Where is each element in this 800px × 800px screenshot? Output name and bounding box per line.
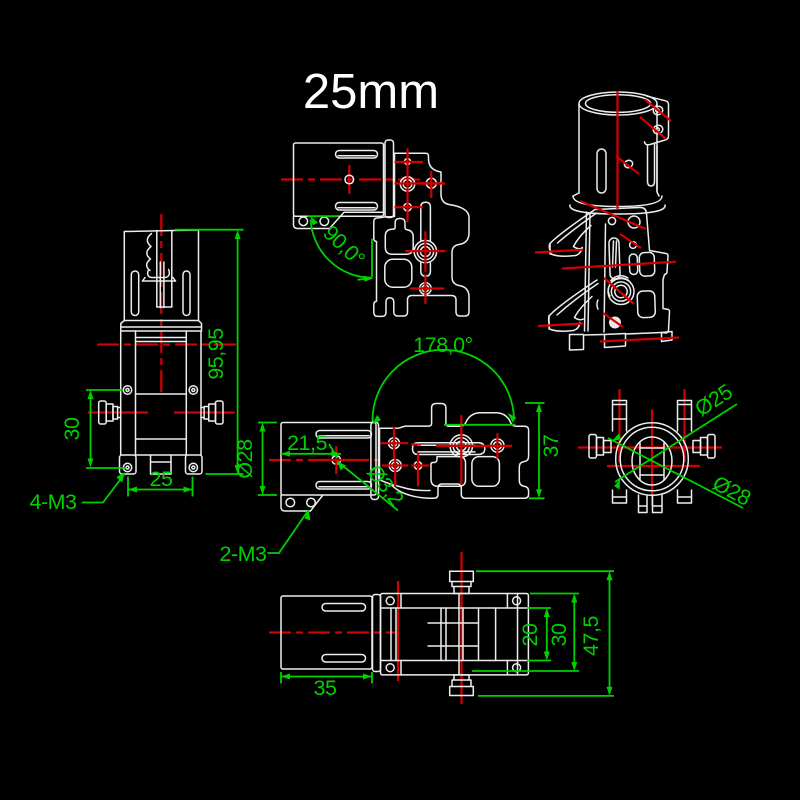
svg-text:4-M3: 4-M3 xyxy=(30,490,78,514)
svg-text:35: 35 xyxy=(314,676,337,700)
svg-text:21,5: 21,5 xyxy=(287,431,327,455)
svg-text:25: 25 xyxy=(150,467,173,491)
svg-text:2-M3: 2-M3 xyxy=(220,542,268,566)
svg-text:30: 30 xyxy=(60,417,84,440)
svg-text:25mm: 25mm xyxy=(303,65,439,119)
svg-text:95,95: 95,95 xyxy=(204,328,228,380)
svg-text:37: 37 xyxy=(539,435,563,458)
svg-text:47,5: 47,5 xyxy=(579,616,603,656)
svg-text:Ø28: Ø28 xyxy=(233,439,257,479)
svg-text:30: 30 xyxy=(547,623,571,646)
svg-text:178,0°: 178,0° xyxy=(413,333,472,357)
svg-text:20: 20 xyxy=(518,623,542,646)
